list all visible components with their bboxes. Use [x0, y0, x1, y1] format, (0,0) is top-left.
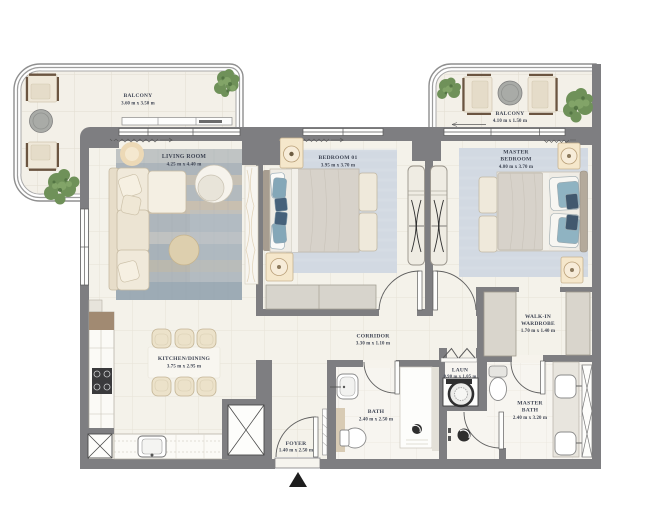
svg-text:3.60 m x 3.50 m: 3.60 m x 3.50 m: [121, 102, 155, 107]
svg-text:MASTER: MASTER: [503, 150, 529, 156]
svg-text:3.75 m x 2.95 m: 3.75 m x 2.95 m: [167, 365, 201, 370]
svg-text:WARDROBE: WARDROBE: [521, 321, 555, 327]
svg-text:BALCONY: BALCONY: [124, 93, 153, 99]
svg-text:4.00 m x 3.70 m: 4.00 m x 3.70 m: [499, 165, 533, 170]
svg-text:LIVING ROOM: LIVING ROOM: [162, 154, 206, 160]
svg-text:4.10 m x 1.50 m: 4.10 m x 1.50 m: [493, 119, 527, 124]
svg-text:1.40 m x 2.50 m: 1.40 m x 2.50 m: [279, 449, 313, 454]
svg-text:BEDROOM: BEDROOM: [500, 157, 532, 163]
svg-text:1.70 m x 1.40 m: 1.70 m x 1.40 m: [521, 329, 555, 334]
svg-text:MASTER: MASTER: [517, 401, 543, 407]
svg-text:BEDROOM 01: BEDROOM 01: [318, 155, 357, 161]
svg-text:2.40 m x 3.20 m: 2.40 m x 3.20 m: [513, 416, 547, 421]
svg-text:BATH: BATH: [368, 409, 385, 415]
svg-text:KITCHEN/DINING: KITCHEN/DINING: [158, 356, 211, 362]
svg-text:FOYER: FOYER: [286, 441, 308, 447]
svg-text:BALCONY: BALCONY: [496, 111, 525, 117]
svg-text:4.25 m x 4.40 m: 4.25 m x 4.40 m: [167, 163, 202, 168]
svg-text:3.30 m x 1.10 m: 3.30 m x 1.10 m: [356, 342, 390, 347]
svg-text:3.95 m x 3.70 m: 3.95 m x 3.70 m: [321, 164, 355, 169]
svg-text:BATH: BATH: [522, 408, 539, 414]
svg-text:WALK-IN: WALK-IN: [525, 314, 551, 320]
svg-text:CORRIDOR: CORRIDOR: [356, 334, 390, 340]
svg-text:2.40 m x 2.50 m: 2.40 m x 2.50 m: [359, 418, 393, 423]
